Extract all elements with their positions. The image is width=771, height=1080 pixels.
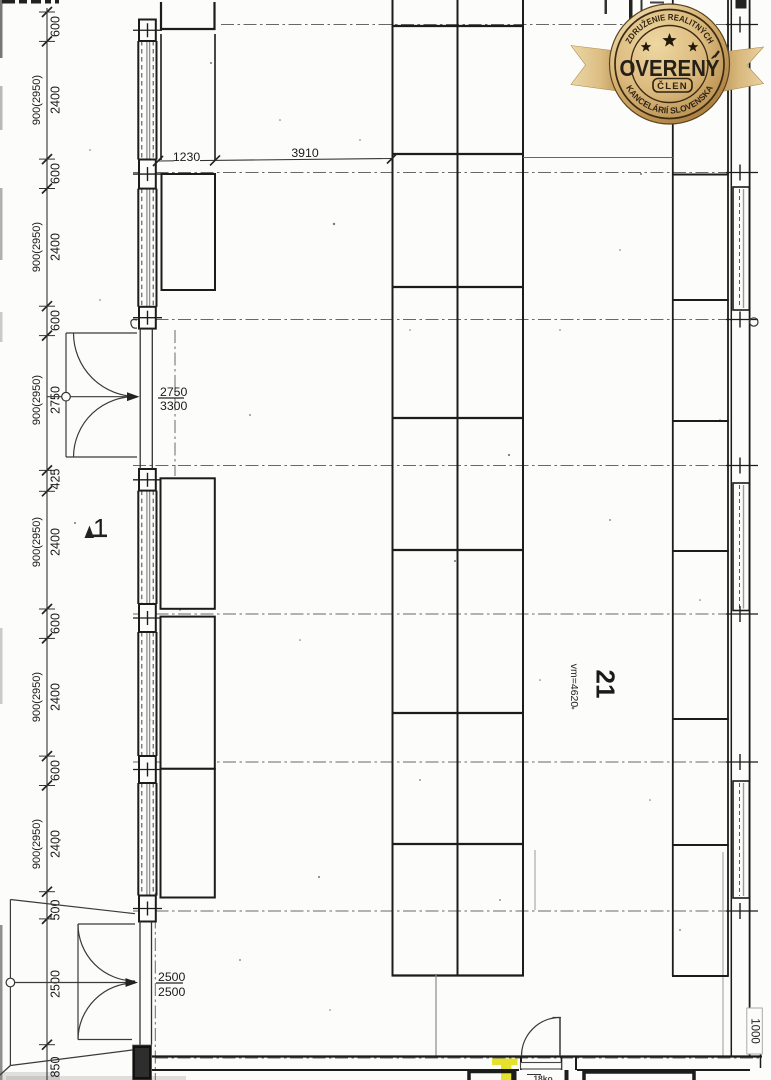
svg-text:2750: 2750: [49, 386, 63, 414]
svg-text:600: 600: [49, 613, 63, 634]
svg-text:900(2950): 900(2950): [31, 517, 43, 567]
svg-text:ČLEN: ČLEN: [657, 80, 688, 92]
svg-text:3910: 3910: [291, 146, 319, 160]
svg-text:1230: 1230: [173, 150, 201, 164]
svg-text:2400: 2400: [49, 86, 63, 114]
svg-text:600: 600: [49, 760, 63, 781]
svg-text:2500: 2500: [158, 970, 186, 984]
svg-text:2400: 2400: [49, 683, 63, 711]
svg-text:2750: 2750: [160, 385, 188, 399]
svg-text:1: 1: [93, 513, 107, 543]
svg-text:600: 600: [49, 16, 63, 37]
svg-text:vm=4620: vm=4620: [568, 664, 580, 708]
svg-text:500: 500: [49, 900, 63, 921]
svg-text:2500: 2500: [158, 985, 186, 999]
svg-text:900(2950): 900(2950): [31, 375, 43, 425]
svg-text:3300: 3300: [160, 399, 188, 413]
svg-text:2400: 2400: [49, 830, 63, 858]
svg-text:2500: 2500: [49, 970, 63, 998]
svg-text:600: 600: [49, 163, 63, 184]
svg-text:2400: 2400: [49, 233, 63, 261]
svg-text:2400: 2400: [49, 528, 63, 556]
svg-text:21: 21: [591, 670, 621, 699]
svg-text:900(2950): 900(2950): [31, 75, 43, 125]
svg-text:600: 600: [49, 310, 63, 331]
svg-text:OVERENÝ: OVERENÝ: [620, 54, 720, 81]
svg-text:425: 425: [49, 469, 63, 490]
svg-text:900(2950): 900(2950): [31, 819, 43, 869]
svg-text:1000: 1000: [749, 1018, 761, 1044]
svg-text:900(2950): 900(2950): [31, 222, 43, 272]
svg-text:900(2950): 900(2950): [31, 672, 43, 722]
